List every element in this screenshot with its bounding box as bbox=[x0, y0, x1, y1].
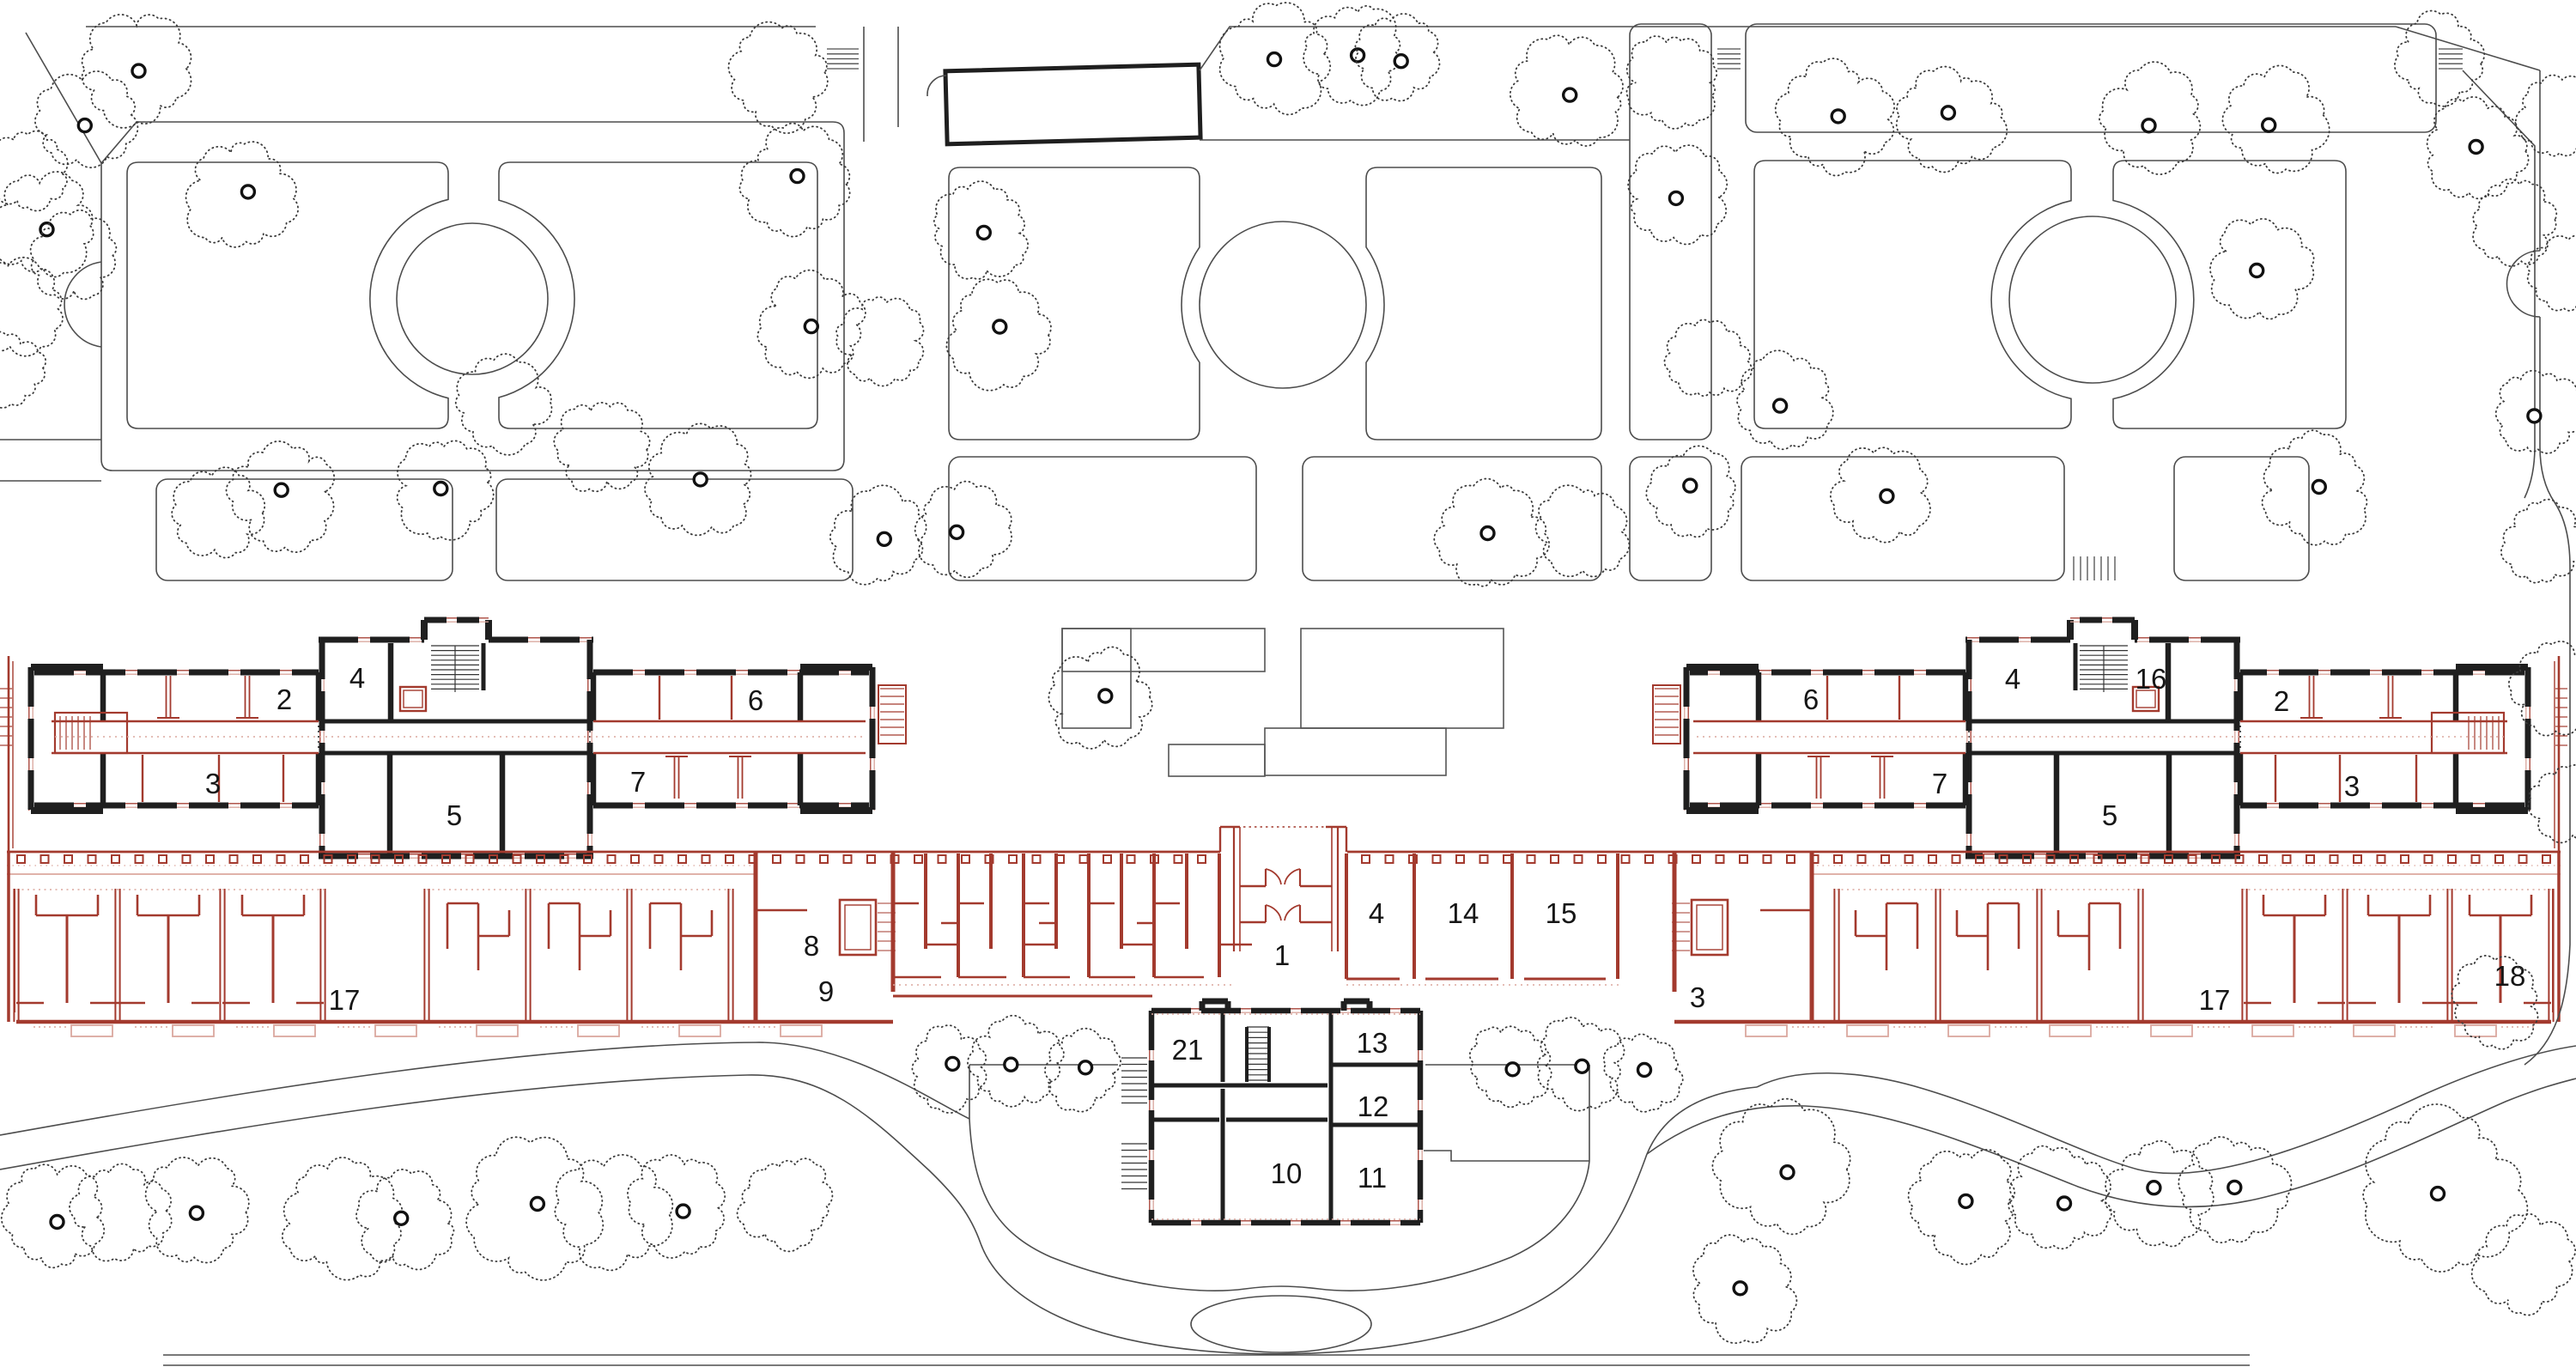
svg-text:9: 9 bbox=[818, 975, 834, 1007]
svg-text:3: 3 bbox=[1690, 981, 1705, 1013]
svg-text:6: 6 bbox=[1803, 683, 1819, 715]
svg-text:8: 8 bbox=[804, 930, 819, 962]
svg-text:14: 14 bbox=[1448, 897, 1479, 929]
svg-text:17: 17 bbox=[329, 984, 361, 1016]
svg-text:18: 18 bbox=[2494, 960, 2526, 992]
svg-text:7: 7 bbox=[1932, 768, 1947, 799]
svg-text:10: 10 bbox=[1271, 1157, 1303, 1189]
svg-text:13: 13 bbox=[1357, 1027, 1388, 1059]
svg-text:12: 12 bbox=[1358, 1091, 1389, 1122]
svg-text:4: 4 bbox=[1369, 897, 1384, 929]
svg-text:17: 17 bbox=[2199, 984, 2231, 1016]
svg-text:4: 4 bbox=[349, 662, 365, 694]
svg-text:15: 15 bbox=[1546, 897, 1577, 929]
svg-text:16: 16 bbox=[2136, 663, 2167, 695]
svg-text:5: 5 bbox=[447, 799, 462, 831]
svg-text:3: 3 bbox=[205, 768, 221, 799]
svg-text:5: 5 bbox=[2102, 799, 2117, 831]
svg-text:6: 6 bbox=[748, 684, 763, 716]
svg-text:2: 2 bbox=[2274, 685, 2289, 717]
svg-text:21: 21 bbox=[1172, 1034, 1204, 1066]
svg-text:2: 2 bbox=[276, 683, 292, 715]
svg-text:3: 3 bbox=[2344, 770, 2360, 802]
svg-text:7: 7 bbox=[630, 766, 646, 798]
svg-text:4: 4 bbox=[2005, 663, 2020, 695]
svg-text:11: 11 bbox=[1358, 1162, 1387, 1194]
svg-text:1: 1 bbox=[1274, 939, 1290, 971]
